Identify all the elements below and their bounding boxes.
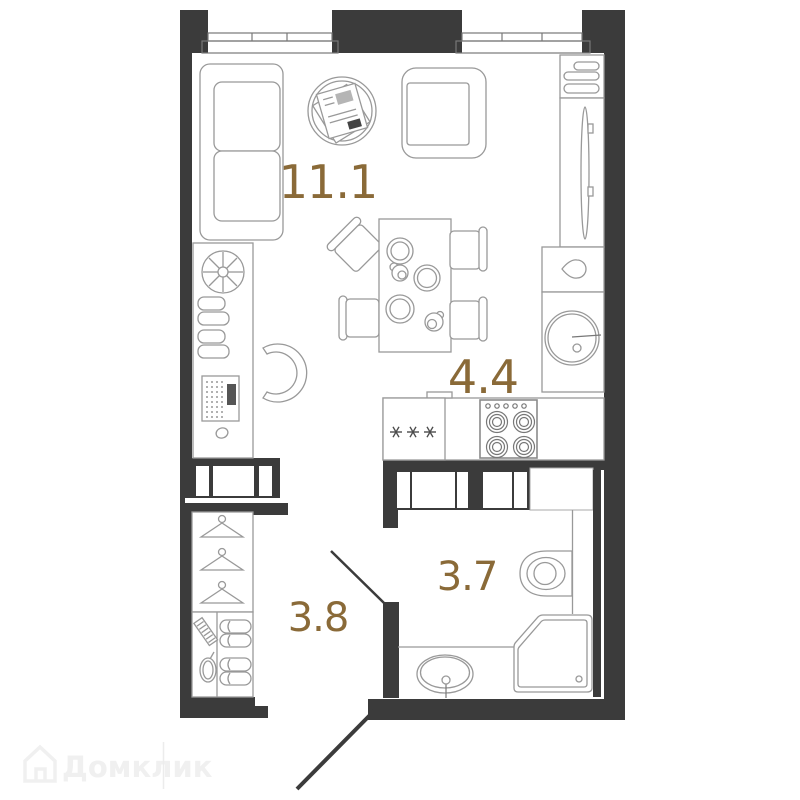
bathroom-area-label: 3.7	[437, 554, 498, 600]
coffee-table	[308, 77, 376, 145]
shoe-cabinet	[192, 612, 253, 697]
dining-chair-left	[339, 296, 379, 340]
window-2-sill	[456, 41, 590, 53]
kitchen-sink-unit	[542, 292, 604, 392]
dining-chair-top-left	[326, 216, 385, 275]
wall-bottom-left-step	[255, 706, 268, 718]
bathroom-door-jamb-top	[383, 510, 398, 528]
armchair	[402, 68, 486, 158]
dining-table	[379, 219, 451, 352]
bathroom-niche	[530, 468, 593, 510]
hallway-furniture	[192, 512, 253, 697]
dining-set	[326, 216, 487, 352]
toilet	[520, 551, 572, 596]
wall-left	[180, 10, 192, 718]
round-sink	[545, 311, 599, 365]
window-1-frame	[208, 33, 332, 41]
doors	[297, 551, 384, 789]
living-room-area-label: 11.1	[279, 155, 377, 209]
bathroom-door-jamb-bottom	[383, 602, 399, 698]
desk-area	[193, 243, 307, 458]
shelf-unit	[560, 55, 604, 98]
window-1	[202, 10, 338, 53]
window-1-sill	[202, 41, 338, 53]
tv-unit	[560, 98, 604, 247]
desk-chair	[263, 344, 307, 402]
dining-chair-right-2	[450, 297, 487, 341]
wall-bottom-left	[180, 697, 255, 718]
living-room-furniture	[200, 64, 486, 240]
window-2-frame	[462, 33, 582, 41]
fridge	[383, 398, 445, 460]
sofa	[200, 64, 283, 240]
wall-bottom-right	[368, 699, 625, 720]
watermark-brand: Домклик	[62, 750, 213, 784]
hallway-area-label: 3.8	[288, 595, 349, 641]
wall-right	[604, 10, 625, 720]
watermark: Домклик	[25, 742, 213, 789]
window-2	[456, 10, 590, 53]
domclick-house-icon	[25, 747, 55, 781]
bathroom-sink	[417, 655, 473, 698]
kitchen-area-label: 4.4	[448, 350, 518, 404]
entry-door-swing	[297, 711, 374, 789]
stove	[480, 400, 537, 458]
dining-chair-right-1	[450, 227, 487, 271]
keyboard	[202, 376, 239, 421]
wall-bathroom-inner-right	[593, 470, 601, 697]
wall-top-middle	[332, 10, 462, 53]
shower-cabin	[514, 615, 592, 692]
floor-plan: 11.1 4.4 3.8 3.7 Домклик	[0, 0, 800, 800]
kettle-counter	[542, 247, 604, 292]
fan-icon	[202, 251, 244, 293]
bathroom-fixtures	[398, 510, 592, 698]
